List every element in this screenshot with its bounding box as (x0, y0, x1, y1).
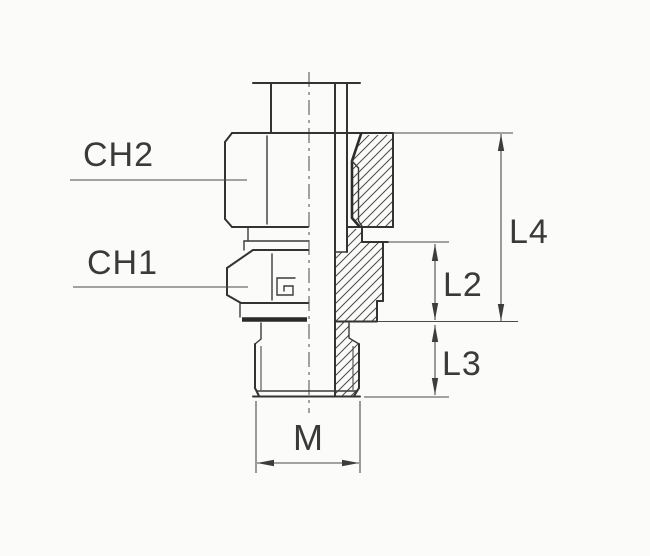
l3-arrow-up (432, 325, 438, 342)
l2-label: L2 (443, 266, 483, 304)
hex1-face-mark (277, 278, 295, 295)
dimension-m: M (257, 417, 359, 466)
l3-label: L3 (442, 345, 482, 383)
ch1-label: CH1 (87, 244, 158, 282)
l3-arrow-down (432, 378, 438, 395)
hex1-chamfer-bottom-left (227, 295, 241, 303)
m-label: M (293, 417, 323, 458)
section-hatching (335, 135, 393, 396)
l4-arrow-up (498, 134, 504, 151)
l2-arrow-up (432, 244, 438, 261)
fitting-technical-drawing: L4 L2 L3 M CH2 CH1 (0, 0, 650, 556)
l2-arrow-down (432, 303, 438, 320)
stud-chamfer-left (255, 388, 259, 396)
hex1-chamfer-top-left (227, 250, 253, 268)
ch2-label: CH2 (83, 136, 154, 174)
undercut-left (255, 323, 261, 344)
m-arrow-right (342, 460, 359, 466)
l4-label: L4 (509, 213, 549, 251)
dimension-l2: L2 (432, 244, 483, 320)
drawing-canvas: L4 L2 L3 M CH2 CH1 (0, 0, 650, 556)
dimension-l3: L3 (432, 325, 482, 395)
m-arrow-left (257, 460, 274, 466)
nut-chamfer-bottom-left (225, 219, 232, 227)
l4-arrow-down (498, 304, 504, 321)
nut-chamfer-top-left (225, 133, 232, 142)
dimension-l4: L4 (498, 134, 549, 321)
